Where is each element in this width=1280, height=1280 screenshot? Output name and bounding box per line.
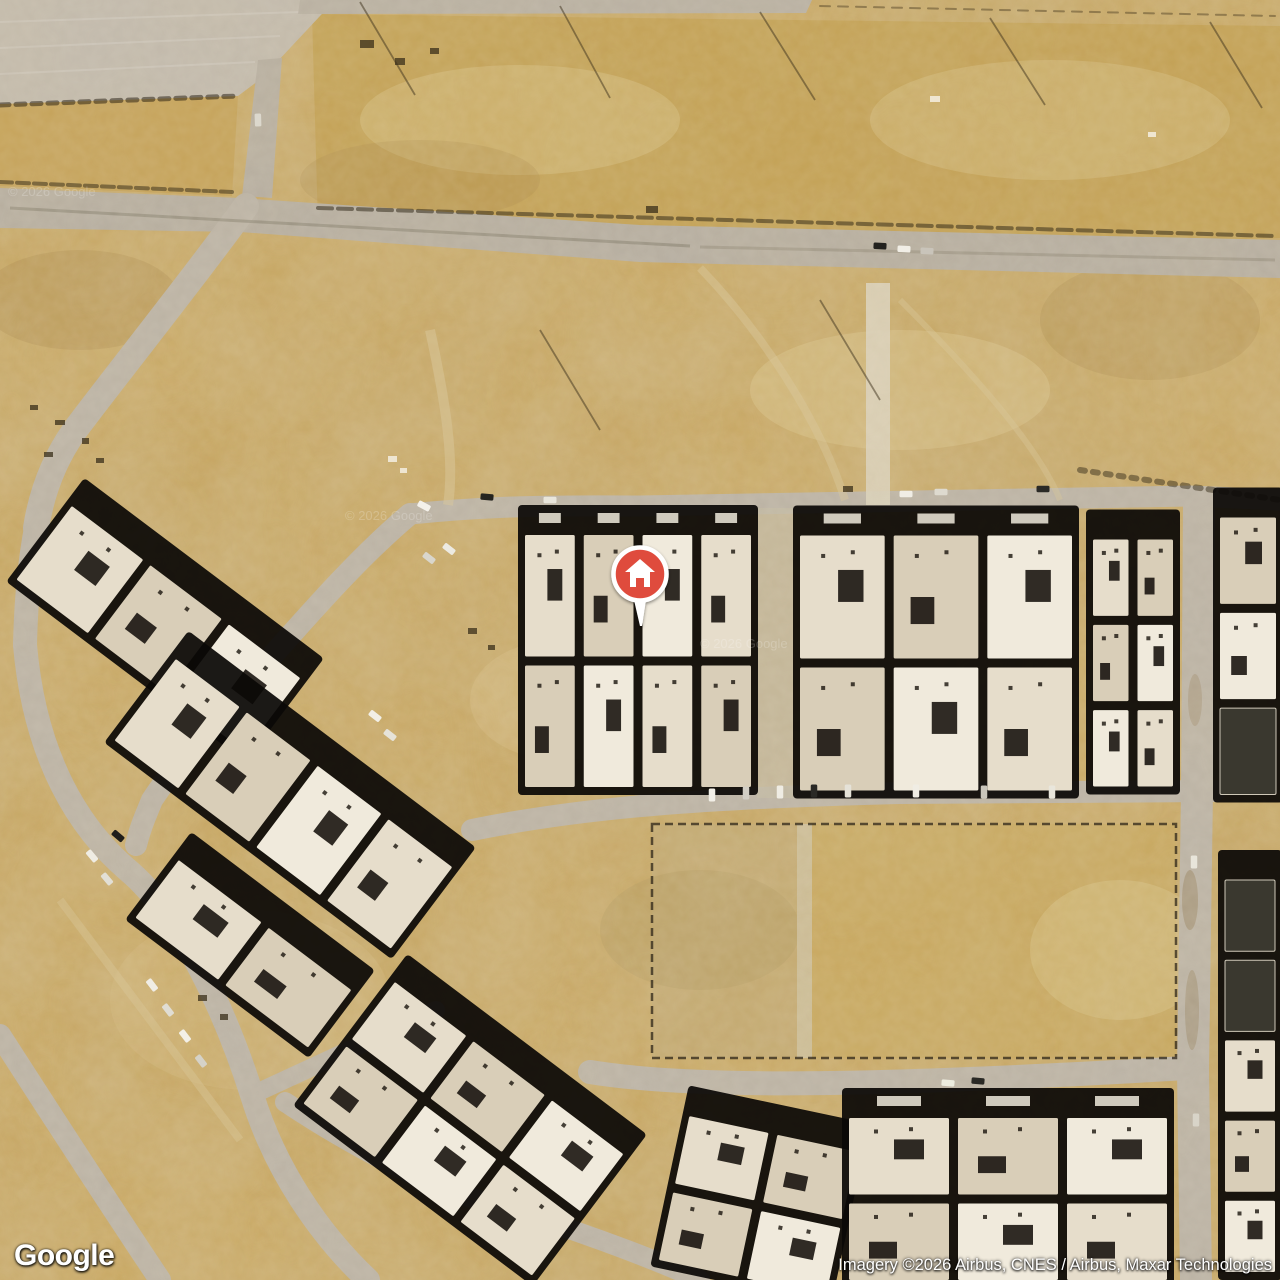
satellite-imagery: © 2026 Google © 2026 Google © 2026 Googl… — [0, 0, 1280, 1280]
location-marker[interactable] — [602, 540, 678, 630]
map-watermark: © 2026 Google — [700, 636, 788, 651]
map-canvas[interactable]: © 2026 Google © 2026 Google © 2026 Googl… — [0, 0, 1280, 1280]
imagery-attribution: Imagery ©2026 Airbus, CNES / Airbus, Max… — [838, 1256, 1272, 1275]
pin-stem — [634, 600, 646, 626]
map-watermark: © 2026 Google — [8, 184, 96, 199]
map-watermark: © 2026 Google — [345, 508, 433, 523]
google-logo[interactable]: Google — [14, 1239, 114, 1273]
